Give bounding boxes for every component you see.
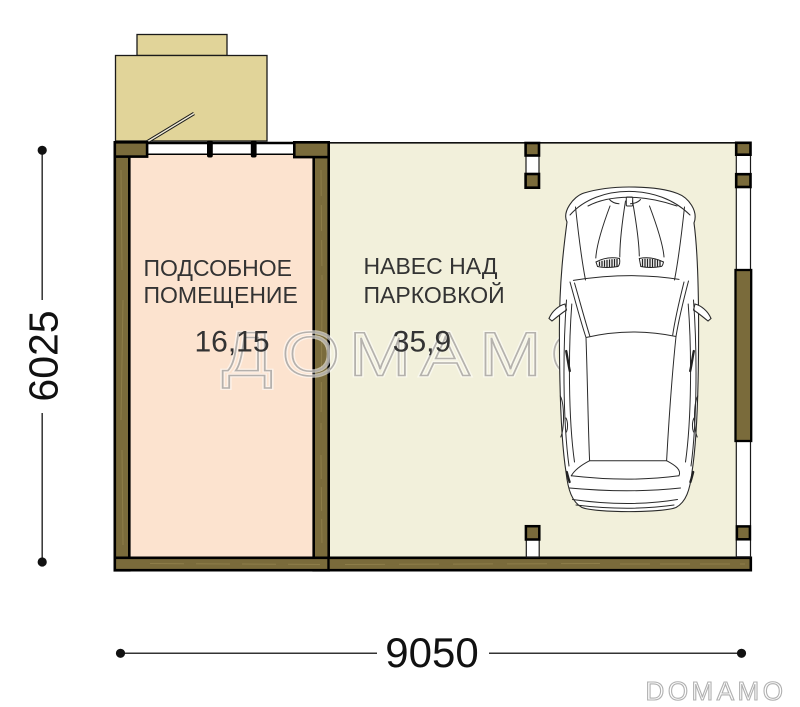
svg-text:35,9: 35,9 (393, 326, 451, 359)
svg-text:9050: 9050 (385, 629, 478, 676)
svg-text:ПОМЕЩЕНИЕ: ПОМЕЩЕНИЕ (144, 282, 298, 308)
svg-text:ПАРКОВКОЙ: ПАРКОВКОЙ (364, 281, 505, 308)
svg-text:НАВЕС НАД: НАВЕС НАД (364, 253, 498, 279)
svg-text:ПОДСОБНОЕ: ПОДСОБНОЕ (144, 255, 292, 281)
svg-text:6025: 6025 (21, 310, 67, 401)
svg-text:DOMAMO: DOMAMO (646, 676, 787, 706)
svg-text:16,15: 16,15 (194, 326, 269, 359)
